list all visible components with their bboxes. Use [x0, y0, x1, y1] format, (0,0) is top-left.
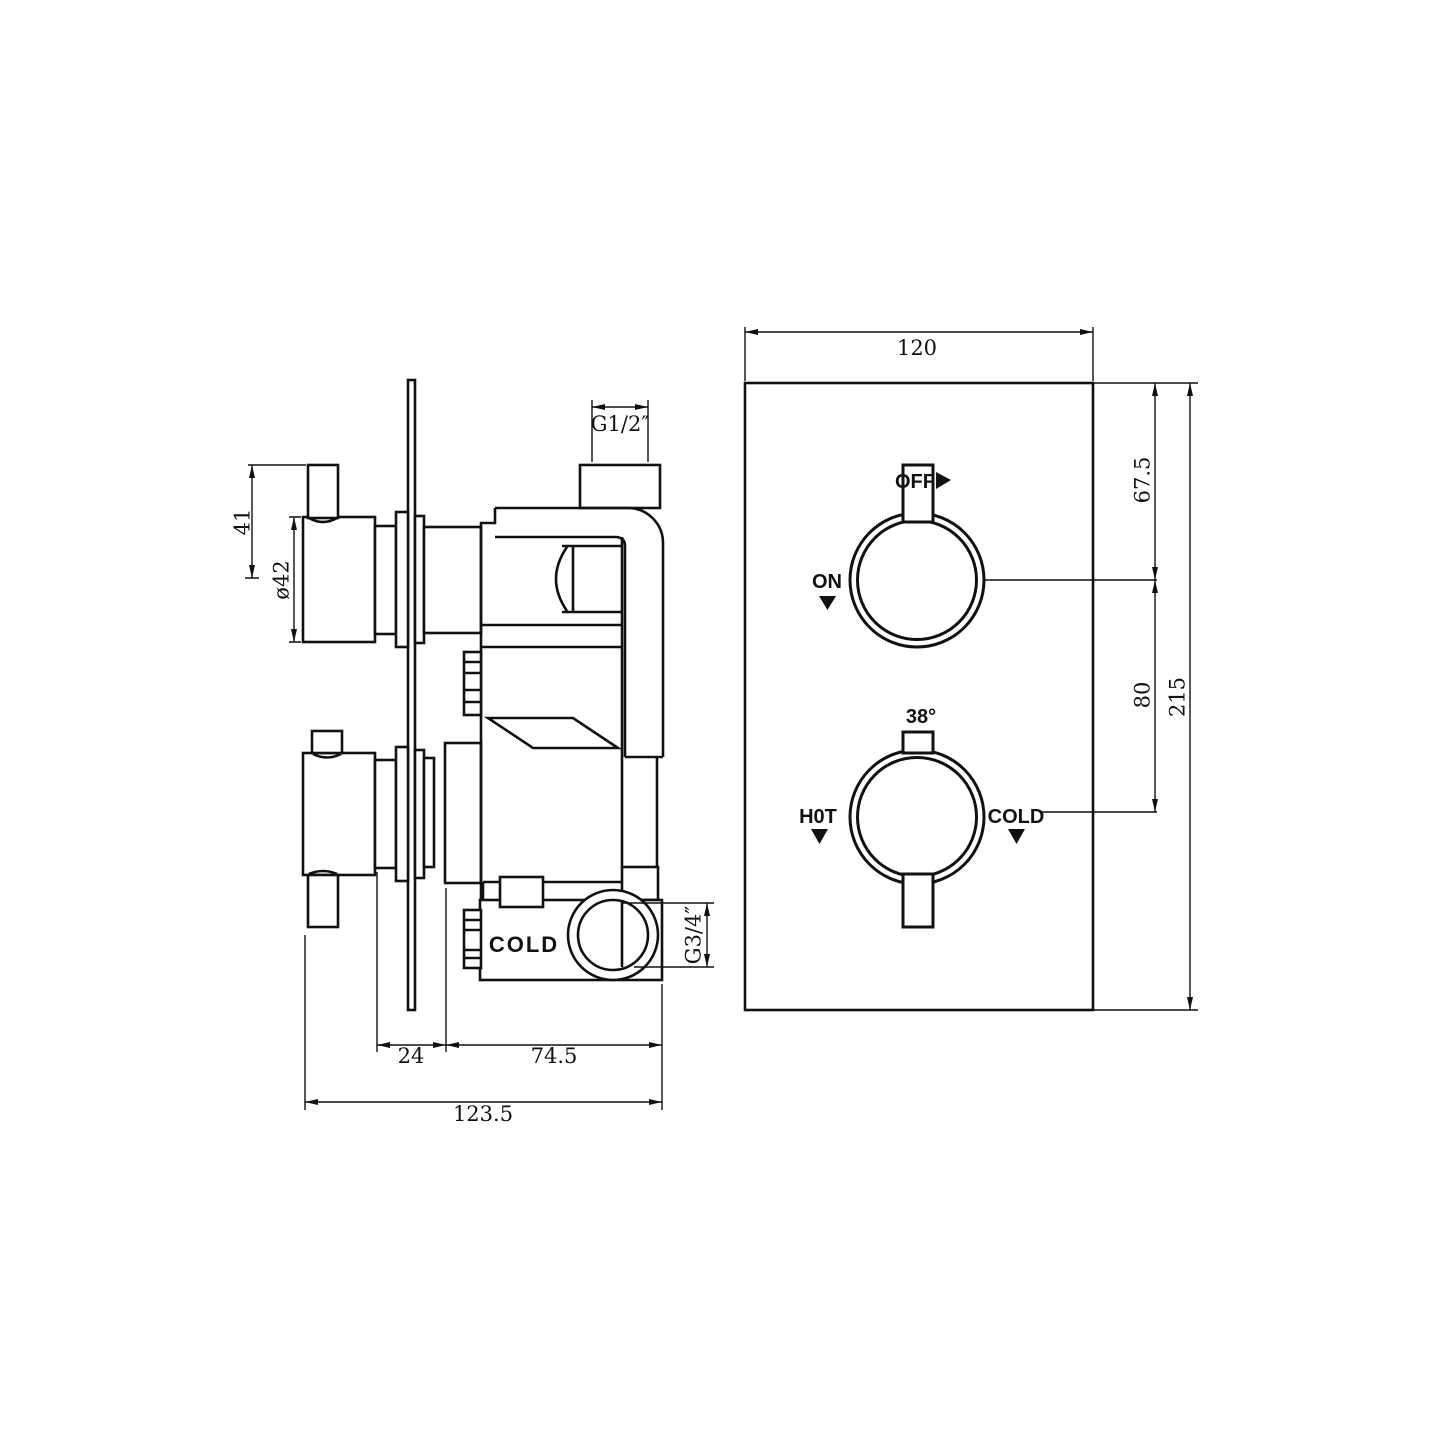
dim-74-5-text: 74.5: [531, 1044, 578, 1068]
front-view: OFF ON 38° H0T COLD 120: [745, 327, 1198, 1010]
body-left-edge: [481, 508, 495, 900]
upper-valve-side: [303, 465, 481, 647]
off-label: OFF: [895, 471, 935, 493]
dim-123-5-text: 123.5: [453, 1102, 513, 1126]
lower-knob-stub: [312, 731, 342, 753]
upper-knob-lever: [308, 465, 338, 518]
dim-120-text: 120: [897, 336, 937, 360]
temp-38-label: 38°: [906, 706, 936, 728]
upper-knob-stem: [375, 526, 396, 634]
dim-g12-text: G1/2″: [591, 412, 650, 436]
temp-knob-outer-ring: [850, 750, 984, 884]
diagonal-plate: [488, 718, 618, 748]
valve-drawing-svg: COLD 41 ø42 G1/2″ G3/4″ 24 74.5: [0, 0, 1445, 1445]
cold-label: COLD: [988, 806, 1045, 828]
lower-hex-fitting: [464, 910, 481, 968]
lower-adapter: [424, 758, 434, 867]
dim-80-text: 80: [1130, 682, 1154, 709]
dim-g34-text: G3/4″: [681, 906, 705, 965]
dim-d42-text: ø42: [269, 560, 293, 599]
lower-knob-lever: [308, 875, 338, 927]
inlet-boss: [500, 877, 543, 907]
dim-67-5-text: 67.5: [1130, 457, 1154, 504]
dim-24-text: 24: [398, 1044, 425, 1068]
lower-knob-stem: [375, 760, 396, 868]
temp-knob-stub: [903, 732, 933, 753]
upper-hex-fitting: [464, 652, 481, 715]
upper-flange-back: [415, 516, 424, 643]
cold-port-label: COLD: [489, 932, 559, 957]
technical-drawing-sheet: COLD 41 ø42 G1/2″ G3/4″ 24 74.5: [0, 0, 1445, 1445]
upper-flange-front: [396, 512, 408, 647]
lower-bracket: [445, 743, 481, 883]
upper-knob-body: [303, 517, 375, 642]
lower-knob-body: [303, 753, 375, 875]
lower-flange-front: [396, 747, 408, 881]
lower-flange-back: [415, 750, 424, 878]
temp-knob-handle: [903, 874, 933, 927]
hot-label: H0T: [799, 806, 837, 828]
dome-port-arc: [556, 547, 567, 611]
dim-41-text: 41: [230, 509, 254, 536]
on-label: ON: [812, 571, 842, 593]
dim-215-text: 215: [1165, 677, 1189, 717]
top-outlet-fitting: [580, 465, 660, 508]
wall-plate-edge: [408, 380, 415, 1010]
upper-cartridge: [424, 527, 481, 633]
lower-valve-side: [303, 731, 481, 927]
side-view: COLD 41 ø42 G1/2″ G3/4″ 24 74.5: [230, 380, 714, 1126]
on-off-knob-outer-ring: [850, 513, 984, 647]
